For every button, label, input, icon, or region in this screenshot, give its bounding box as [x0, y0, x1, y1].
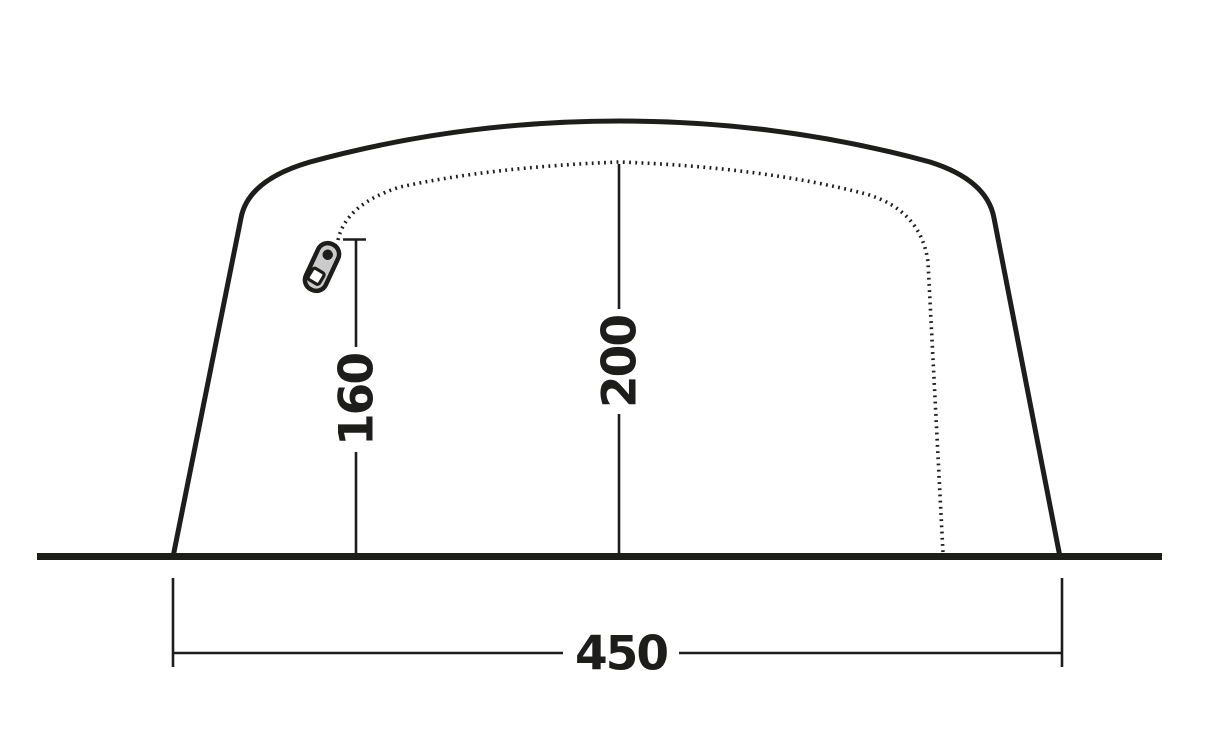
dimension-label-200: 200 [593, 316, 648, 408]
zipper-pull-body [301, 240, 342, 295]
zipper-pull-icon [301, 240, 342, 295]
dimension-label-450: 450 [575, 627, 667, 682]
diagram-canvas: 160 200 450 [0, 0, 1230, 755]
dimension-label-160: 160 [330, 354, 385, 446]
tent-dimension-diagram: 160 200 450 [0, 0, 1230, 755]
